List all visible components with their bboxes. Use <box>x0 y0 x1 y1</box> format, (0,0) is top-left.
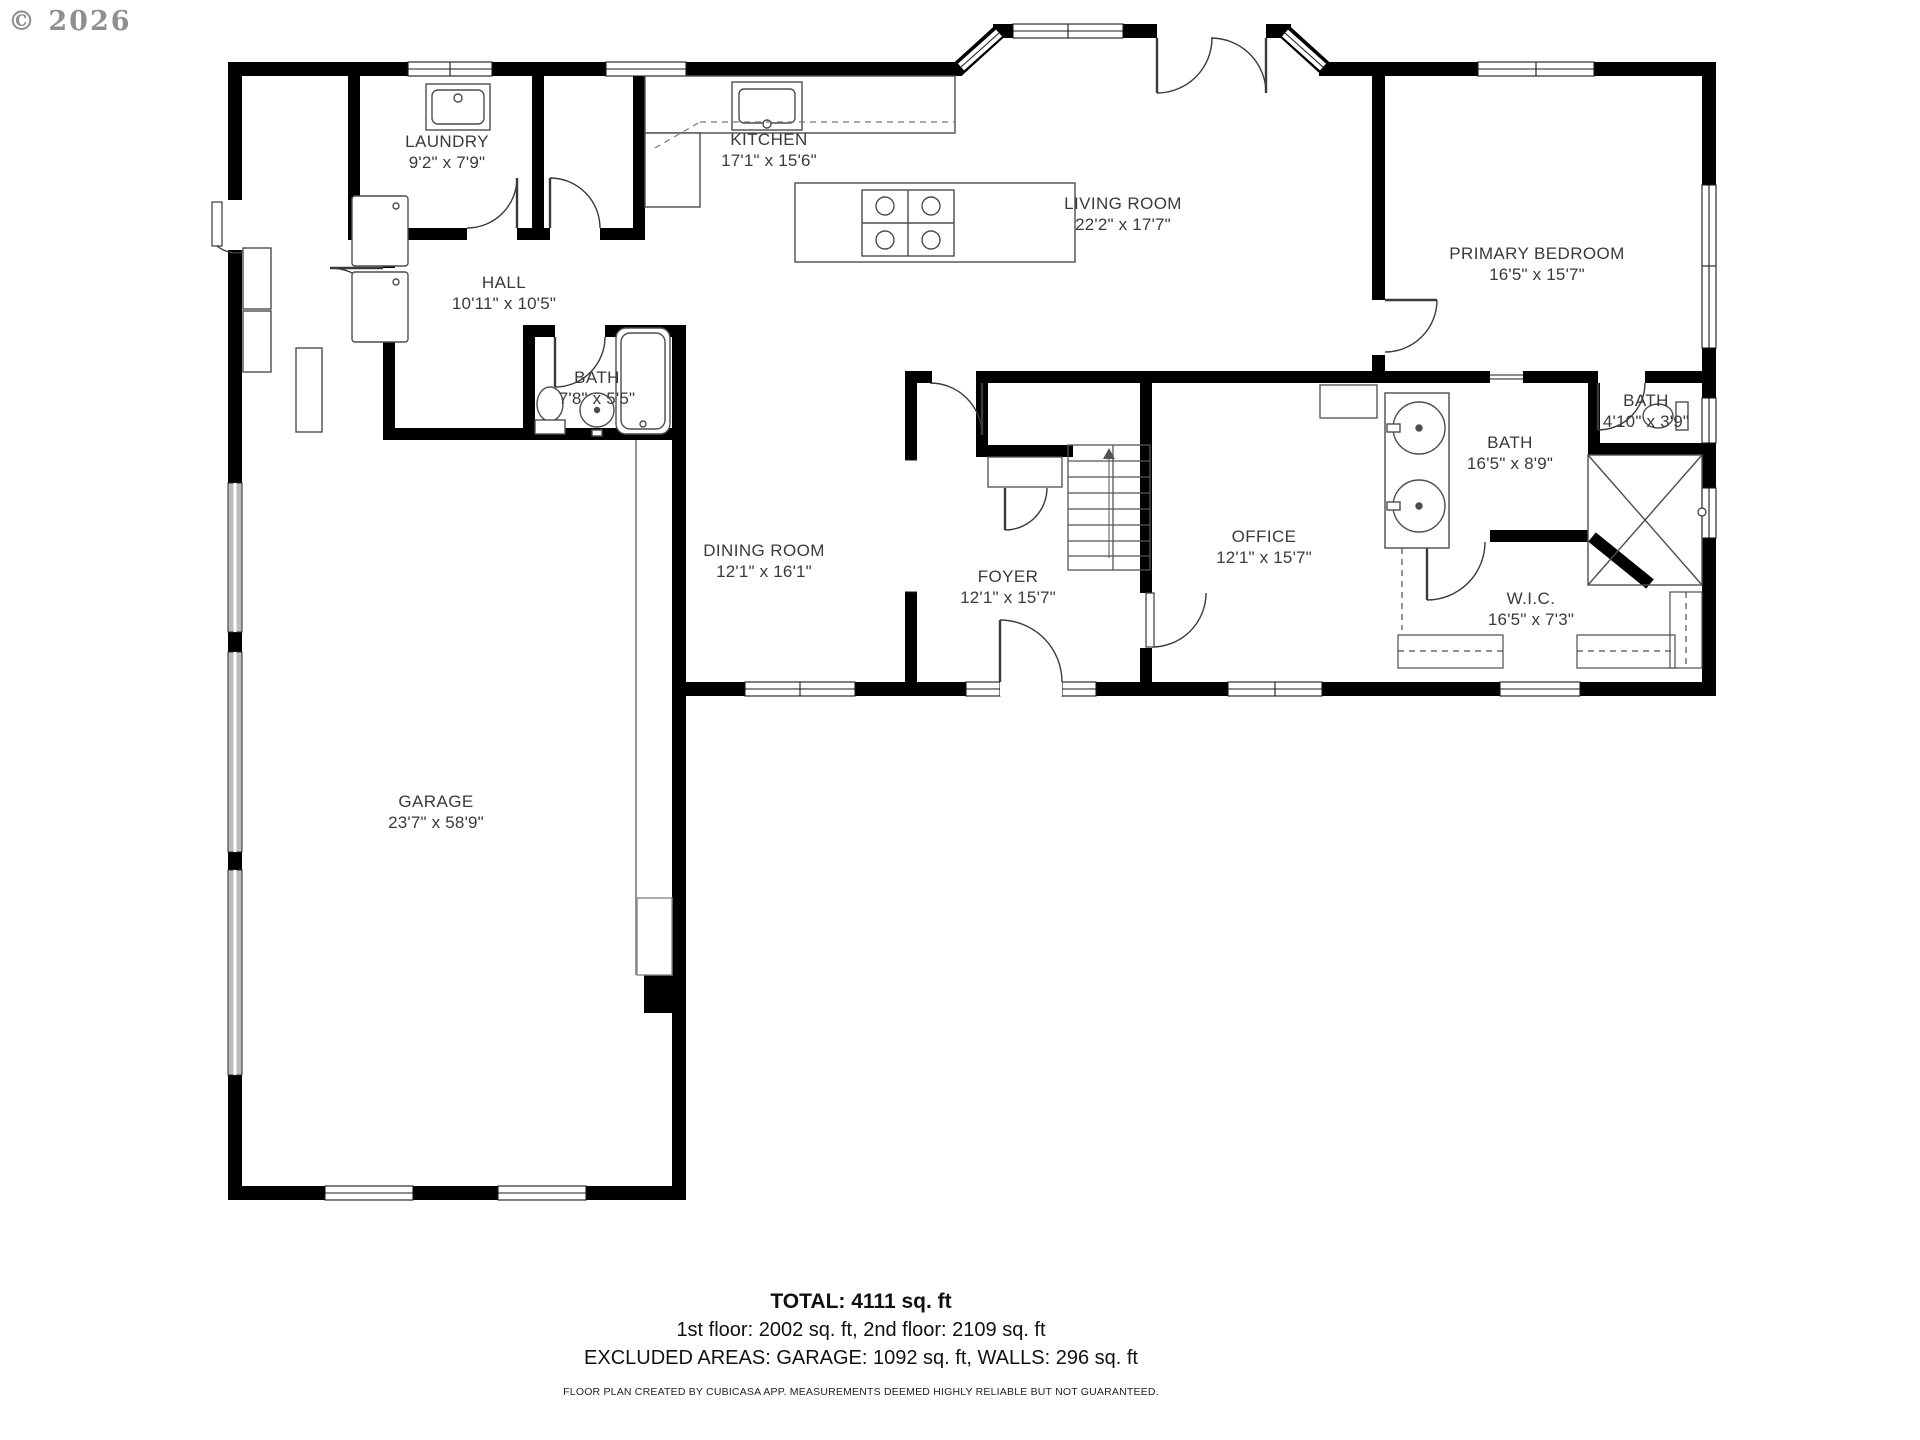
room-name: KITCHEN <box>721 129 817 150</box>
room-dims: 4'10" x 3'9" <box>1603 411 1689 432</box>
excluded-areas: EXCLUDED AREAS: GARAGE: 1092 sq. ft, WAL… <box>0 1344 1722 1372</box>
area-summary: TOTAL: 4111 sq. ft 1st floor: 2002 sq. f… <box>0 1288 1722 1398</box>
office-closet <box>1320 385 1377 418</box>
room-name: BATH <box>559 367 636 388</box>
room-label-primary-bedroom: PRIMARY BEDROOM 16'5" x 15'7" <box>1449 243 1624 285</box>
room-label-small-bath: BATH 4'10" x 3'9" <box>1603 390 1689 432</box>
room-dims: 10'11" x 10'5" <box>452 293 556 314</box>
room-name: LIVING ROOM <box>1064 193 1182 214</box>
room-label-primary-bath: BATH 16'5" x 8'9" <box>1467 432 1553 474</box>
garage-details <box>243 248 672 975</box>
room-dims: 17'1" x 15'6" <box>721 150 817 171</box>
room-name: LAUNDRY <box>405 131 489 152</box>
room-label-wic: W.I.C. 16'5" x 7'3" <box>1488 588 1574 630</box>
room-label-laundry: LAUNDRY 9'2" x 7'9" <box>405 131 489 173</box>
room-name: PRIMARY BEDROOM <box>1449 243 1624 264</box>
room-dims: 23'7" x 58'9" <box>388 812 484 833</box>
room-name: W.I.C. <box>1488 588 1574 609</box>
room-dims: 16'5" x 15'7" <box>1449 264 1624 285</box>
room-name: OFFICE <box>1216 526 1312 547</box>
room-label-kitchen: KITCHEN 17'1" x 15'6" <box>721 129 817 171</box>
stairs <box>988 445 1150 570</box>
room-name: HALL <box>452 272 556 293</box>
floor-areas: 1st floor: 2002 sq. ft, 2nd floor: 2109 … <box>0 1316 1722 1344</box>
shower <box>1588 455 1706 585</box>
room-dims: 12'1" x 15'7" <box>960 587 1056 608</box>
copyright-watermark: © 2026 <box>8 6 132 37</box>
room-name: GARAGE <box>388 791 484 812</box>
room-label-dining-room: DINING ROOM 12'1" x 16'1" <box>703 540 825 582</box>
room-dims: 22'2" x 17'7" <box>1064 214 1182 235</box>
room-label-garage: GARAGE 23'7" x 58'9" <box>388 791 484 833</box>
room-label-office: OFFICE 12'1" x 15'7" <box>1216 526 1312 568</box>
garage-door-panels <box>228 483 242 1075</box>
primary-bath-fixtures <box>1385 393 1449 548</box>
room-dims: 16'5" x 8'9" <box>1467 453 1553 474</box>
room-label-hall-bath: BATH 7'8" x 5'5" <box>559 367 636 409</box>
room-name: DINING ROOM <box>703 540 825 561</box>
room-dims: 9'2" x 7'9" <box>405 152 489 173</box>
room-label-living-room: LIVING ROOM 22'2" x 17'7" <box>1064 193 1182 235</box>
floor-plan-drawing <box>0 0 1920 1440</box>
room-dims: 7'8" x 5'5" <box>559 388 636 409</box>
kitchen-fixtures <box>645 76 1075 262</box>
room-name: BATH <box>1603 390 1689 411</box>
room-label-foyer: FOYER 12'1" x 15'7" <box>960 566 1056 608</box>
room-label-hall: HALL 10'11" x 10'5" <box>452 272 556 314</box>
room-dims: 12'1" x 15'7" <box>1216 547 1312 568</box>
total-area: TOTAL: 4111 sq. ft <box>0 1288 1722 1316</box>
room-dims: 12'1" x 16'1" <box>703 561 825 582</box>
floor-plan-page: LAUNDRY 9'2" x 7'9" KITCHEN 17'1" x 15'6… <box>0 0 1920 1440</box>
room-dims: 16'5" x 7'3" <box>1488 609 1574 630</box>
disclaimer-text: FLOOR PLAN CREATED BY CUBICASA APP. MEAS… <box>0 1386 1722 1398</box>
room-name: BATH <box>1467 432 1553 453</box>
room-name: FOYER <box>960 566 1056 587</box>
wic-diagonal-wall <box>1592 537 1650 584</box>
